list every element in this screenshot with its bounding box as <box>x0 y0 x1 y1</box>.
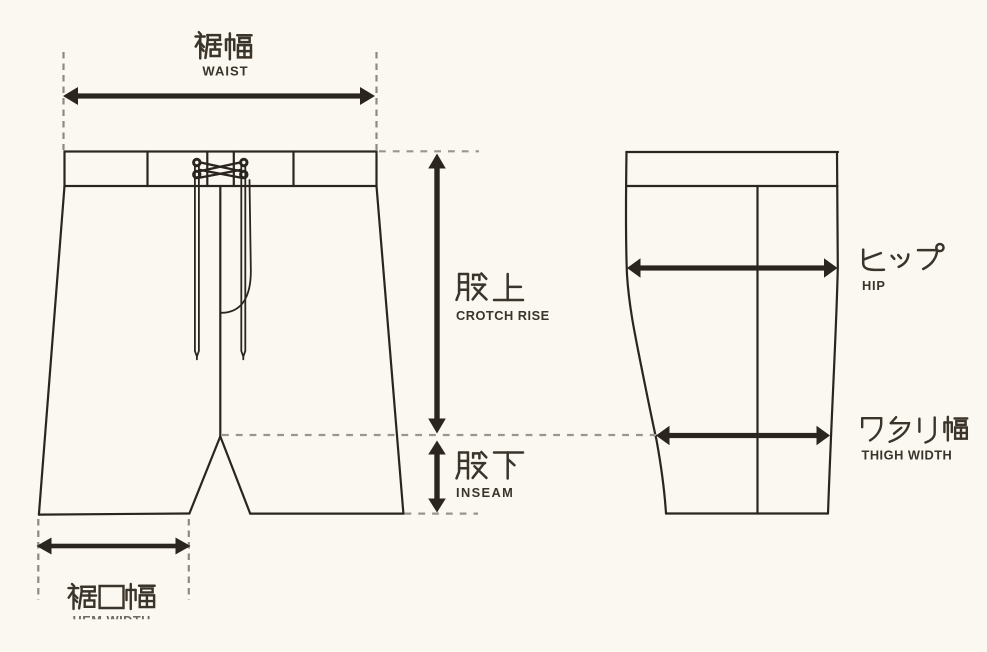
svg-text:HIP: HIP <box>862 278 886 293</box>
svg-text:INSEAM: INSEAM <box>456 485 514 500</box>
svg-text:THIGH WIDTH: THIGH WIDTH <box>862 448 953 463</box>
svg-text:CROTCH RISE: CROTCH RISE <box>456 308 550 323</box>
svg-text:WAIST: WAIST <box>202 64 248 79</box>
